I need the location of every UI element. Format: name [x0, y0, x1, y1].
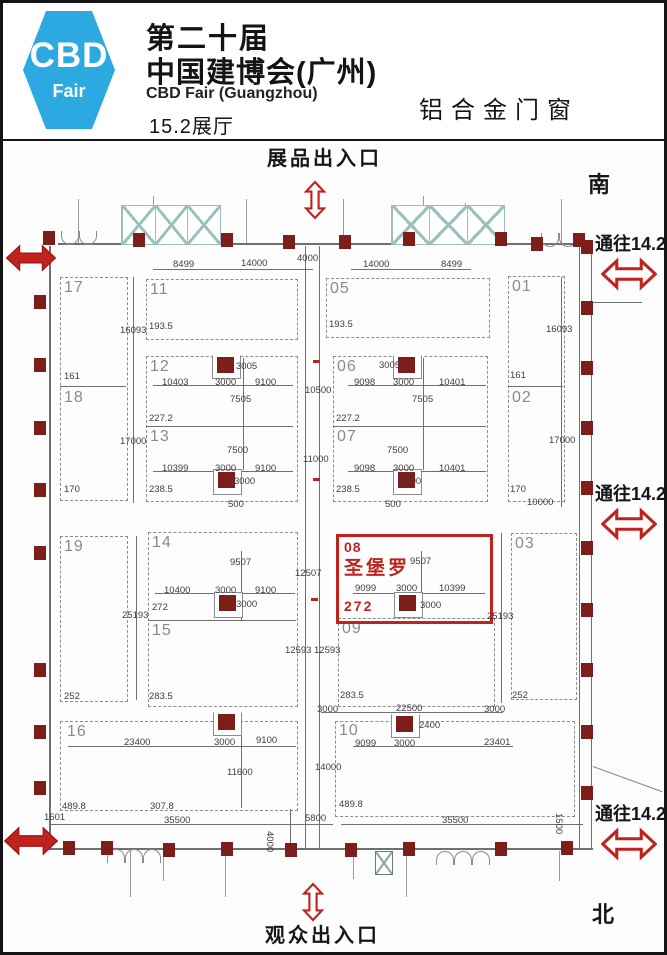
wall-column: [581, 541, 593, 555]
dim-label: 3000: [394, 738, 415, 749]
dim-label: 14000: [241, 258, 267, 269]
dim-label: 10399: [439, 583, 465, 594]
wall-column: [163, 843, 175, 857]
booth-05-label: 05: [330, 280, 350, 298]
dim-label: 193.5: [329, 319, 353, 330]
red-tick: [313, 360, 320, 363]
dim-label: 10403: [162, 377, 188, 388]
dim-label: 3000: [400, 476, 421, 487]
dim-label: 35500: [164, 815, 190, 826]
door-arc: [472, 851, 490, 865]
booth-08-area: 272: [344, 598, 373, 614]
dim-label: 7500: [227, 445, 248, 456]
wall-column: [133, 233, 145, 247]
wall-column: [495, 232, 507, 246]
dim-label: 9098: [354, 377, 375, 388]
left-top-exit-arrow-icon: [5, 241, 57, 275]
dim-label: 7505: [230, 394, 251, 405]
dim-label: 238.5: [336, 484, 360, 495]
dim-label: 3000: [393, 377, 414, 388]
dim-label: 3000: [393, 463, 414, 474]
dim-label: 10399: [162, 463, 188, 474]
dim-label: 500: [228, 499, 244, 510]
plan-line: [68, 746, 296, 747]
dim-label: 9507: [410, 556, 431, 567]
booth-18-label: 18: [64, 389, 84, 407]
booth-07-label: 07: [337, 428, 357, 446]
truss-x-cell: [187, 206, 220, 244]
exhibit-entrance-arrow-icon: [303, 171, 327, 229]
dim-label: 3000: [236, 599, 257, 610]
dim-label: 11000: [303, 454, 329, 465]
wall-post: [559, 851, 560, 881]
booth-11-label: 11: [150, 281, 169, 299]
dim-label: 252: [64, 691, 80, 702]
wall-column: [101, 841, 113, 855]
dim-label: 161: [510, 370, 526, 381]
wall-column: [581, 421, 593, 435]
door-arc: [454, 851, 472, 865]
dim-label: 3000: [215, 585, 236, 596]
wall-column: [34, 295, 46, 309]
wall-column: [581, 361, 593, 375]
pillar-column: [396, 716, 413, 732]
door-box: [375, 851, 393, 875]
wall-column: [581, 725, 593, 739]
dim-label: 3005: [379, 360, 400, 371]
plan-line: [319, 246, 320, 848]
booth-08-brand: 圣堡罗: [344, 553, 410, 580]
wall-column: [495, 842, 507, 856]
dim-label: 193.5: [149, 321, 173, 332]
dim-label: 489.8: [339, 799, 363, 810]
wall-column: [63, 841, 75, 855]
dim-label: 227.2: [336, 413, 360, 424]
wall-column: [531, 237, 543, 251]
to-14-2-arrow-bottom-icon: [601, 825, 657, 863]
dim-label: 489.8: [62, 801, 86, 812]
dim-label: 10401: [439, 463, 465, 474]
wall-post: [225, 851, 226, 897]
wall-column: [221, 233, 233, 247]
plan-line: [508, 386, 563, 387]
dim-label: 10000: [527, 497, 553, 508]
dim-label: 14000: [363, 259, 389, 270]
pillar-column: [398, 357, 415, 373]
dim-label: 3000: [396, 583, 417, 594]
booth-19-label: 19: [64, 538, 84, 556]
sign-north: 北: [592, 897, 614, 929]
booth-01-label: 01: [512, 278, 532, 296]
wall-column: [403, 232, 415, 246]
pillar-column: [399, 595, 416, 611]
wall-diagonal: [593, 766, 663, 792]
dim-label: 3000: [234, 476, 255, 487]
booth-17-label: 17: [64, 279, 84, 297]
dim-label: 3000: [484, 704, 505, 715]
plan-line: [579, 246, 580, 850]
dim-label: 23401: [484, 737, 510, 748]
dim-label: 3000: [420, 600, 441, 611]
wall-column: [345, 843, 357, 857]
dim-label: 227.2: [149, 413, 173, 424]
dim-label: 252: [512, 690, 528, 701]
door-arc: [436, 851, 454, 865]
pillar-column: [218, 472, 235, 488]
dim-label: 11600: [227, 767, 253, 778]
dim-label: 3000: [215, 463, 236, 474]
wall-column: [581, 663, 593, 677]
dim-label: 10500: [305, 385, 331, 396]
floorplan-page: CBD Fair 第二十届 中国建博会(广州) CBD Fair (Guangz…: [0, 0, 667, 955]
sign-to-14-2-bottom: 通往14.2: [595, 800, 666, 826]
dim-label: 1500: [553, 813, 564, 834]
wall-column: [34, 483, 46, 497]
sign-to-14-2-top: 通往14.2: [595, 230, 666, 256]
plan-line: [305, 246, 306, 848]
wall-column: [34, 546, 46, 560]
dim-label: 283.5: [340, 690, 364, 701]
wall-column: [581, 301, 593, 315]
dim-label: 25193: [487, 611, 513, 622]
dim-label: 4000: [264, 831, 275, 852]
dim-label: 4000: [297, 253, 318, 264]
wall-column: [34, 663, 46, 677]
visitor-entrance-arrow-icon: [301, 874, 325, 930]
dim-label: 3000: [214, 737, 235, 748]
wall-column: [339, 235, 351, 249]
booth-13-label: 13: [150, 428, 170, 446]
wall-column: [34, 781, 46, 795]
red-tick: [313, 478, 320, 481]
wall-column: [285, 843, 297, 857]
dim-label: 9100: [255, 585, 276, 596]
dim-label: 9507: [230, 557, 251, 568]
plan-line: [423, 358, 424, 470]
truss-x-cell: [155, 206, 188, 244]
dim-label: 22500: [396, 703, 422, 714]
plan-line: [333, 426, 486, 427]
dim-label: 8499: [441, 259, 462, 270]
dim-label: 8499: [173, 259, 194, 270]
booth-15-label: 15: [152, 622, 172, 640]
wall-column: [34, 725, 46, 739]
wall-column: [561, 841, 573, 855]
dim-label: 10400: [164, 585, 190, 596]
pillar-column: [217, 357, 234, 373]
sign-south: 南: [588, 167, 610, 199]
pillar-column: [218, 714, 235, 730]
sign-exhibit-entrance: 展品出入口: [267, 142, 382, 171]
dim-label: 35500: [442, 815, 468, 826]
booth-06-label: 06: [337, 358, 357, 376]
dim-label: 283.5: [149, 691, 173, 702]
truss-x-cell: [429, 206, 466, 244]
dim-label: 17000: [120, 436, 146, 447]
wall-column: [283, 235, 295, 249]
booth-14-label: 14: [152, 534, 172, 552]
dim-label: 307.8: [150, 801, 174, 812]
booth-16-label: 16: [67, 723, 87, 741]
red-tick: [311, 598, 318, 601]
dim-label: 272: [152, 602, 168, 613]
to-14-2-arrow-mid-icon: [601, 505, 657, 543]
dim-label: 14000: [315, 762, 341, 773]
dim-label: 3005: [236, 361, 257, 372]
wall-column: [581, 786, 593, 800]
plan-line: [49, 246, 51, 850]
booth-03-label: 03: [515, 535, 535, 553]
dim-label: 9099: [355, 583, 376, 594]
door-arc: [143, 849, 161, 863]
wall-column: [581, 481, 593, 495]
dim-label: 12593: [314, 645, 340, 656]
dim-label: 16093: [546, 324, 572, 335]
dim-label: 16093: [120, 325, 146, 336]
plan-line: [148, 620, 296, 621]
dim-label: 3000: [317, 704, 338, 715]
dim-label: 170: [64, 484, 80, 495]
wall-post: [406, 851, 407, 897]
dim-label: 9100: [255, 463, 276, 474]
dim-label: 9100: [256, 735, 277, 746]
dim-label: 161: [64, 371, 80, 382]
dim-label: 25193: [122, 610, 148, 621]
booth-19-outline: [60, 536, 128, 702]
dim-label: 9100: [255, 377, 276, 388]
dim-label: 3000: [215, 377, 236, 388]
dim-label: 9098: [354, 463, 375, 474]
dim-label: 500: [385, 499, 401, 510]
dim-label: 170: [510, 484, 526, 495]
dim-label: 7505: [412, 394, 433, 405]
dim-label: 23400: [124, 737, 150, 748]
dim-label: 12507: [295, 568, 321, 579]
wall-column: [34, 421, 46, 435]
dim-label: 12593: [285, 645, 311, 656]
plan-line: [146, 426, 293, 427]
wall-column: [581, 603, 593, 617]
plan-line: [133, 277, 134, 503]
wall-column: [403, 842, 415, 856]
plan-line: [60, 386, 126, 387]
dim-label: 17000: [549, 435, 575, 446]
dim-label: 238.5: [149, 484, 173, 495]
plan-line: [561, 277, 562, 507]
left-bottom-exit-arrow-icon: [3, 823, 59, 859]
wall-column: [34, 358, 46, 372]
booth-12-label: 12: [150, 358, 170, 376]
dim-label: 10401: [439, 377, 465, 388]
booth-10-outline: [335, 721, 575, 817]
plan-line: [592, 302, 642, 303]
booth-02-label: 02: [512, 389, 532, 407]
door-arc: [125, 849, 143, 863]
dim-label: 7500: [387, 445, 408, 456]
sign-to-14-2-mid: 通往14.2: [595, 480, 666, 506]
dim-label: 2400: [419, 720, 440, 731]
dim-label: 1601: [44, 812, 65, 823]
wall-post: [246, 199, 247, 243]
wall-column: [573, 233, 585, 247]
floorplan-canvas: 08 圣堡罗 272 展品出入口 南 通往14.2 通往14.2 通往14.2 …: [3, 3, 667, 955]
wall-column: [221, 842, 233, 856]
booth-03-outline: [511, 533, 577, 700]
dim-label: 9099: [355, 738, 376, 749]
pillar-column: [219, 595, 236, 611]
to-14-2-arrow-top-icon: [601, 255, 657, 293]
dim-label: 5800: [305, 813, 326, 824]
